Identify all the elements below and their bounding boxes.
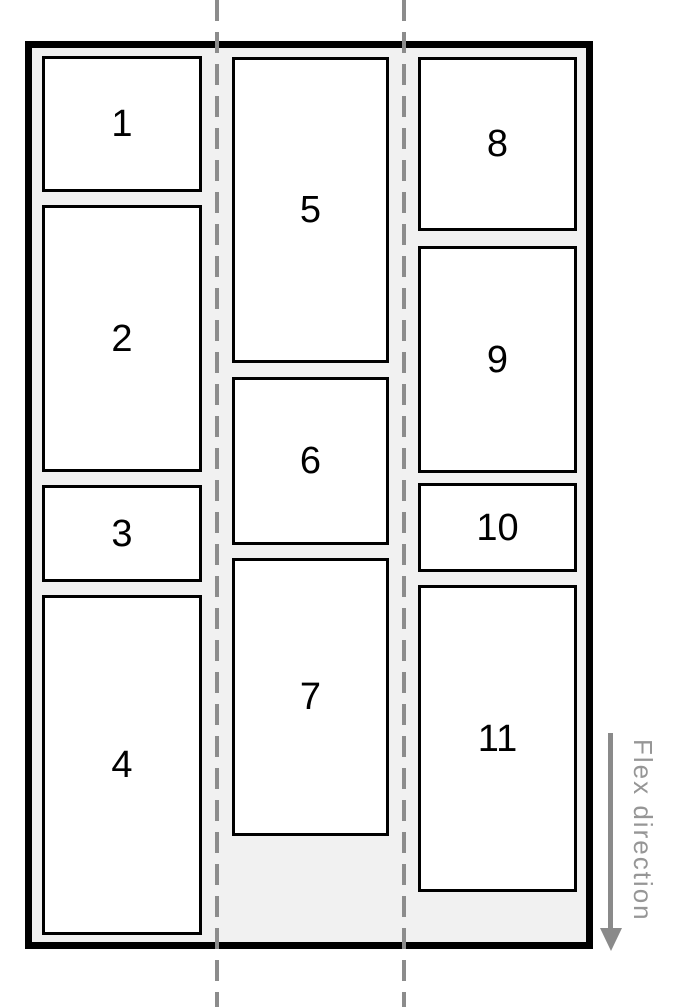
flex-item-2-label: 2 bbox=[111, 320, 132, 358]
flex-item-8-label: 8 bbox=[487, 125, 508, 163]
flex-item-5-label: 5 bbox=[300, 191, 321, 229]
flex-item-8: 8 bbox=[418, 57, 577, 231]
flex-item-2: 2 bbox=[42, 205, 202, 472]
flex-item-4: 4 bbox=[42, 595, 202, 935]
flex-column-2: 5 6 7 bbox=[232, 57, 389, 836]
flex-item-1-label: 1 bbox=[111, 105, 132, 143]
flex-item-3: 3 bbox=[42, 485, 202, 582]
flex-container: 1 2 3 4 5 6 7 8 bbox=[25, 41, 593, 949]
flex-item-6-label: 6 bbox=[300, 442, 321, 480]
flex-direction-arrow-head-icon bbox=[600, 928, 622, 951]
flex-item-11-label: 11 bbox=[478, 720, 517, 758]
flex-direction-arrow-shaft bbox=[608, 733, 613, 929]
flex-item-9-label: 9 bbox=[487, 341, 508, 379]
flex-column-3: 8 9 10 11 bbox=[418, 57, 577, 892]
wrap-boundary-dashed-line-2 bbox=[402, 0, 406, 1007]
flex-item-10-label: 10 bbox=[476, 509, 518, 547]
flex-item-10: 10 bbox=[418, 483, 577, 572]
flex-direction-label: Flex direction bbox=[627, 739, 658, 922]
flex-item-3-label: 3 bbox=[111, 515, 132, 553]
flex-item-9: 9 bbox=[418, 246, 577, 473]
flex-item-5: 5 bbox=[232, 57, 389, 363]
flex-item-6: 6 bbox=[232, 377, 389, 545]
flex-item-11: 11 bbox=[418, 585, 577, 892]
flex-column-1: 1 2 3 4 bbox=[42, 56, 202, 935]
flex-item-1: 1 bbox=[42, 56, 202, 192]
flex-item-7-label: 7 bbox=[300, 678, 321, 716]
flex-item-7: 7 bbox=[232, 558, 389, 836]
flexbox-wrap-diagram: 1 2 3 4 5 6 7 8 bbox=[0, 0, 674, 1007]
flex-item-4-label: 4 bbox=[111, 746, 132, 784]
wrap-boundary-dashed-line-1 bbox=[215, 0, 219, 1007]
